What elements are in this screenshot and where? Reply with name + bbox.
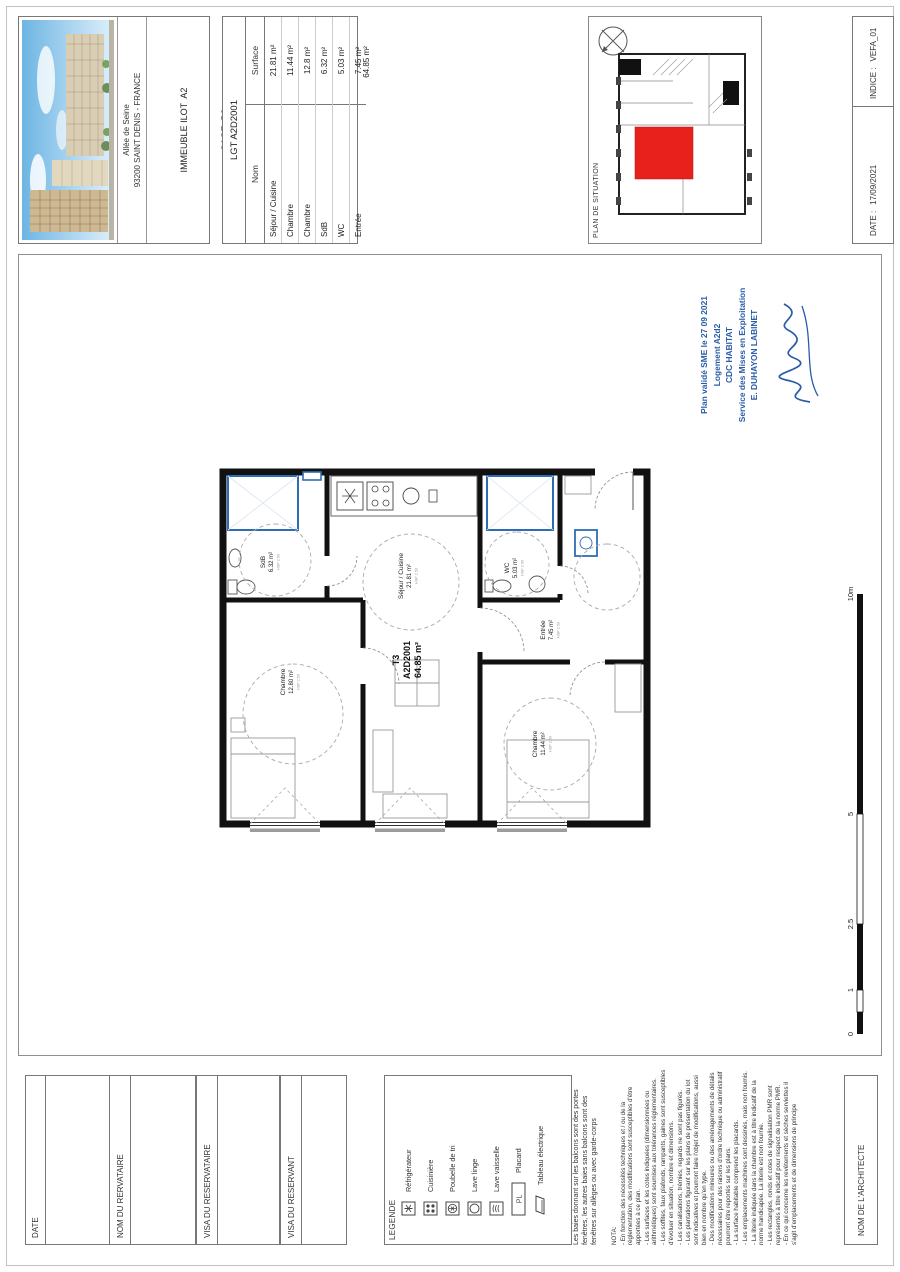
room-label-sejour: Séjour / Cuisine (398, 553, 405, 599)
nota-line: - Les soffites, faux plafonds, rampants,… (660, 1069, 675, 1245)
nota-block: NOTA: - En fonction des nécessités techn… (611, 1069, 800, 1245)
architect-name-box: NOM DE L'ARCHITECTE (844, 1075, 878, 1245)
entrance-door (595, 468, 633, 511)
nom-reservataire-text: NOM DU RERVATAIRE (116, 1154, 125, 1238)
stove-icon (423, 1201, 438, 1216)
room-label-sdb: SdB (260, 556, 267, 568)
nota-line: - Les emplacements machines sont dessiné… (742, 1069, 750, 1245)
room-details-sdb: HSP 2.50 (277, 554, 281, 570)
table-row: SdB 6.32 m² (316, 17, 333, 243)
room-surface-cell: 5.03 m² (333, 17, 349, 105)
date-signature-box (46, 1075, 110, 1245)
refrigerator-icon (401, 1201, 416, 1216)
stamp-line: Logement A2d2 (711, 280, 724, 430)
closet-icon: PL (511, 1182, 526, 1216)
visa-reservataire-text: VISA DU RESERVATAIRE (203, 1144, 212, 1238)
kitchen-fixtures (331, 476, 477, 516)
room-surface-cell: 11.44 m² (282, 17, 298, 105)
table-row: Chambre 11.44 m² (282, 17, 299, 243)
address-line2: 93200 SAINT DENIS - FRANCE (132, 17, 143, 243)
room-surface-cell: 21.81 m² (265, 17, 281, 105)
legend-item-tableau-electrique: Tableau électrique (529, 1080, 551, 1240)
nota-line: - Les canalisations, trémies, regards ne… (677, 1069, 685, 1245)
room-name-cell: Séjour / Cuisine (265, 105, 281, 243)
legend-item-placard: PL Placard (507, 1080, 529, 1240)
dishwasher-icon (489, 1201, 504, 1216)
furniture (231, 476, 641, 818)
scale-bar-segments (857, 594, 863, 1034)
indice-value: VEFA_01 (869, 28, 878, 62)
room-details-chambre1: HSP 2.50 (297, 674, 301, 690)
situation-plan-label: PLAN DE SITUATION (593, 162, 600, 238)
exterior-walls (223, 472, 647, 824)
room-label-chambre2: Chambre (532, 730, 539, 757)
legend-label: Poubelle de tri (448, 1145, 457, 1192)
legend-item-poubelle: Poubelle de tri (441, 1080, 463, 1240)
date-signature-label: DATE (25, 1075, 46, 1245)
highlighted-unit (635, 127, 693, 179)
wc-fixtures (485, 476, 553, 592)
legend-item-lave-linge: Lave linge (463, 1080, 485, 1240)
legend-label: Lave linge (470, 1159, 479, 1192)
scale-tick-0: 0 (846, 1032, 855, 1036)
unit-code-label: A2D2001 (402, 641, 412, 679)
legend-label: Réfrigérateur (404, 1149, 413, 1192)
nota-line: - En fonction des nécessités techniques … (620, 1069, 643, 1245)
nota-line: - Les plantations figurant sur les plans… (685, 1069, 708, 1245)
visa-reservataire-box (218, 1075, 280, 1245)
column-header-nom: Nom (246, 105, 264, 243)
stamp-line: CDC HABITAT (723, 280, 736, 430)
room-area-sdb: 6.32 m² (269, 552, 275, 572)
room-name-cell: Entrée (350, 105, 366, 243)
room-name-cell: Chambre (299, 105, 315, 243)
stamp-line: Plan validé SME le 27 09 2021 (698, 280, 711, 430)
room-label-wc: WC (504, 562, 511, 573)
visa-reservant-label: VISA DU RESERVANT (280, 1075, 302, 1245)
nom-reservataire-label: NOM DU RERVATAIRE (109, 1075, 131, 1245)
closet-icon-text: PL (516, 1195, 523, 1204)
room-name-cell: SdB (316, 105, 332, 243)
room-area-wc: 5.03 m² (513, 558, 519, 578)
nota-line: - Les surfaces et les cotes indiquées (d… (644, 1069, 659, 1245)
legend-note: Les baies donnant sur les balcons sont d… (573, 1073, 600, 1245)
room-area-sejour: 21.81 m² (407, 564, 413, 588)
unit-area-label: 64.85 m² (413, 642, 423, 678)
recycle-bin-icon (445, 1201, 460, 1216)
table-row: Chambre 12.8 m² (299, 17, 316, 243)
title-block: Allée de Seine 93200 SAINT DENIS - FRANC… (18, 16, 210, 244)
surface-table: LGT A2D2001 Nom Surface Séjour / Cuisine… (222, 16, 358, 244)
legend-label: Tableau électrique (536, 1126, 545, 1185)
stamp-line: E. DUHAYON LABINET (748, 280, 761, 430)
meta-strip: DATE : 17/09/2021 INDICE : VEFA_01 (852, 16, 894, 244)
nota-line: - La surface habitable comprend les plac… (733, 1069, 741, 1245)
legend-label: Lave vaisselle (492, 1146, 501, 1192)
surface-total: 64.85 m² (362, 18, 371, 106)
table-row: Séjour / Cuisine 21.81 m² (265, 17, 282, 243)
nom-reservataire-box (131, 1075, 196, 1245)
scale-tick-5: 5 (846, 812, 855, 816)
room-label-entree: Entrée (540, 620, 547, 640)
handwritten-signature (762, 295, 832, 410)
room-area-chambre2: 11.44 m² (541, 732, 547, 755)
column-header-surface: Surface (246, 17, 264, 105)
room-name-cell: WC (333, 105, 349, 243)
room-details-entree: HSP 2.50 (557, 622, 561, 638)
room-details-chambre2: HSP 2.50 (549, 736, 553, 752)
apartment-floor-plan: Chambre 12.80 m² HSP 2.50 SdB 6.32 m² HS… (215, 464, 655, 832)
lot-title: LGT A2D2001 (223, 17, 246, 243)
room-surface-cell: 12.8 m² (299, 17, 315, 105)
legend-item-refrigerateur: Réfrigérateur (397, 1080, 419, 1240)
legend-label: Cuisinière (426, 1160, 435, 1192)
scale-tick-1: 1 (846, 988, 855, 992)
room-details-sejour: HSP 2.50 (415, 568, 419, 584)
room-details-wc: HSP 2.50 (521, 560, 525, 576)
validation-stamp: Plan validé SME le 27 09 2021 Logement A… (698, 280, 761, 430)
legend-panel: LEGENDE Réfrigérateur Cuisinière Poubell… (384, 1075, 572, 1245)
room-area-entree: 7.45 m² (549, 620, 555, 640)
scale-tick-10m: 10m (846, 587, 855, 602)
rotated-sheet: DATE NOM DU RERVATAIRE VISA DU RESERVATA… (0, 0, 900, 1272)
surface-table-header: Nom Surface (246, 17, 265, 243)
date-cell: DATE : 17/09/2021 (852, 107, 894, 244)
table-row: WC 5.03 m² (333, 17, 350, 243)
indice-label: INDICE : (869, 67, 878, 99)
project-photo (22, 20, 114, 240)
address-line1: Allée de Seine (121, 17, 132, 243)
unit-type-label: T3 (391, 655, 401, 666)
indice-cell: INDICE : VEFA_01 (852, 16, 894, 107)
nota-line: - En ce qui concerne les revêtements et … (783, 1069, 798, 1245)
situation-mini-plan (613, 33, 755, 225)
scale-tick-2-5: 2.5 (846, 919, 855, 929)
nota-line: - Les rectangles, ronds et cotes de sign… (767, 1069, 782, 1245)
situation-plan-panel: PLAN DE SITUATION (588, 16, 762, 244)
scale-bar: 0 1 2.5 5 10m (844, 580, 870, 1040)
legend-item-lave-vaisselle: Lave vaisselle (485, 1080, 507, 1240)
stamp-line: Service des Mises en Exploitation (736, 280, 749, 430)
document-page: DATE NOM DU RERVATAIRE VISA DU RESERVATA… (0, 0, 900, 1272)
room-label-chambre1: Chambre (280, 668, 287, 695)
legend-item-cuisiniere: Cuisinière (419, 1080, 441, 1240)
date-value: 17/09/2021 (869, 165, 878, 205)
visa-reservant-box (302, 1075, 347, 1245)
pmr-circles (239, 524, 640, 790)
nota-line: - La literie indiquée dans la chambre es… (751, 1069, 766, 1245)
date-label: DATE : (869, 211, 878, 236)
room-area-chambre1: 12.80 m² (289, 670, 295, 694)
nota-title: NOTA: (611, 1069, 619, 1245)
date-signature-text: DATE (31, 1217, 40, 1238)
washing-machine-icon (467, 1201, 482, 1216)
project-address: Allée de Seine 93200 SAINT DENIS - FRANC… (117, 17, 146, 243)
nota-line: - Des modifications mineures ou des amén… (709, 1069, 732, 1245)
visa-reservataire-label: VISA DU RESERVATAIRE (196, 1075, 218, 1245)
interior-walls (223, 472, 647, 824)
legend-label: Placard (514, 1148, 523, 1173)
architect-label: NOM DE L'ARCHITECTE (857, 1145, 866, 1236)
room-name-cell: Chambre (282, 105, 298, 243)
room-surface-cell: 6.32 m² (316, 17, 332, 105)
visa-reservant-text: VISA DU RESERVANT (287, 1156, 296, 1238)
legend-title: LEGENDE (388, 1080, 397, 1240)
electrical-panel-icon (534, 1194, 546, 1216)
building-line1: IMMEUBLE ILOT A2 (178, 17, 192, 243)
door-swings (327, 556, 605, 697)
